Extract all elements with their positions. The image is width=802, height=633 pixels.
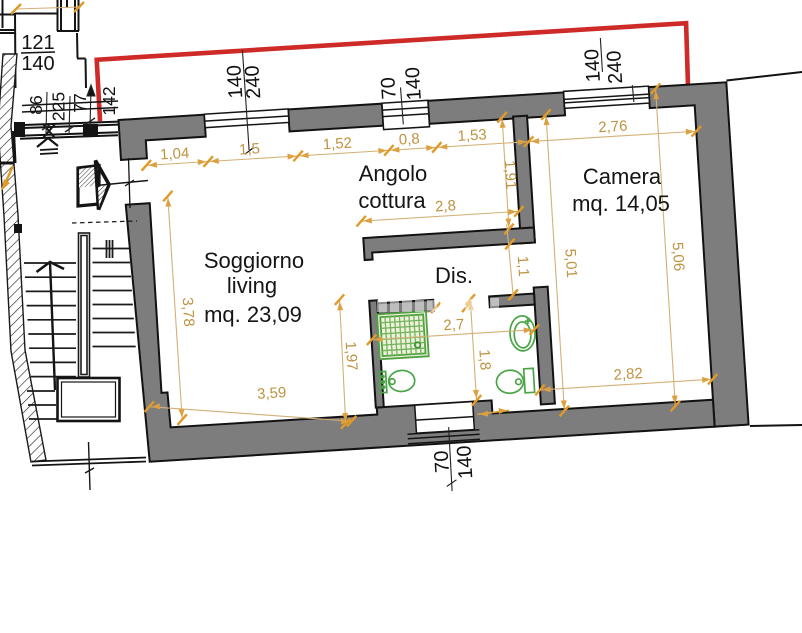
svg-text:Dis.: Dis. xyxy=(435,263,473,288)
svg-text:225: 225 xyxy=(49,92,69,121)
svg-text:5,06: 5,06 xyxy=(669,242,688,272)
svg-text:1,52: 1,52 xyxy=(322,135,352,154)
svg-text:1,5: 1,5 xyxy=(239,140,261,158)
svg-text:2,8: 2,8 xyxy=(435,197,457,215)
svg-text:cottura: cottura xyxy=(358,188,426,213)
svg-text:Angolo: Angolo xyxy=(359,161,428,186)
svg-text:Soggiorno: Soggiorno xyxy=(204,248,304,273)
svg-text:1,97: 1,97 xyxy=(342,341,361,371)
svg-text:3,78: 3,78 xyxy=(179,297,198,327)
svg-text:1,8: 1,8 xyxy=(475,349,493,371)
svg-text:140: 140 xyxy=(402,66,426,101)
svg-text:140: 140 xyxy=(453,445,477,480)
svg-text:140: 140 xyxy=(581,48,605,83)
svg-text:121: 121 xyxy=(21,32,54,54)
svg-text:1,91: 1,91 xyxy=(501,160,520,190)
svg-text:70: 70 xyxy=(431,450,454,474)
svg-text:1,53: 1,53 xyxy=(457,126,487,145)
svg-text:140: 140 xyxy=(21,53,54,75)
svg-text:living: living xyxy=(227,273,277,298)
svg-text:Camera: Camera xyxy=(583,164,662,189)
svg-text:240: 240 xyxy=(241,65,265,100)
svg-text:5,01: 5,01 xyxy=(561,248,580,278)
svg-text:70: 70 xyxy=(377,76,400,100)
svg-text:3,59: 3,59 xyxy=(257,384,287,403)
svg-text:mq. 14,05: mq. 14,05 xyxy=(572,191,670,216)
svg-text:2,82: 2,82 xyxy=(613,365,643,384)
svg-text:2,76: 2,76 xyxy=(598,118,628,137)
svg-text:mq. 23,09: mq. 23,09 xyxy=(204,302,302,327)
svg-text:1,1: 1,1 xyxy=(514,255,532,277)
svg-text:2,7: 2,7 xyxy=(443,316,465,334)
svg-text:240: 240 xyxy=(603,50,627,85)
svg-text:0,8: 0,8 xyxy=(398,130,420,148)
svg-text:1,04: 1,04 xyxy=(160,145,190,164)
